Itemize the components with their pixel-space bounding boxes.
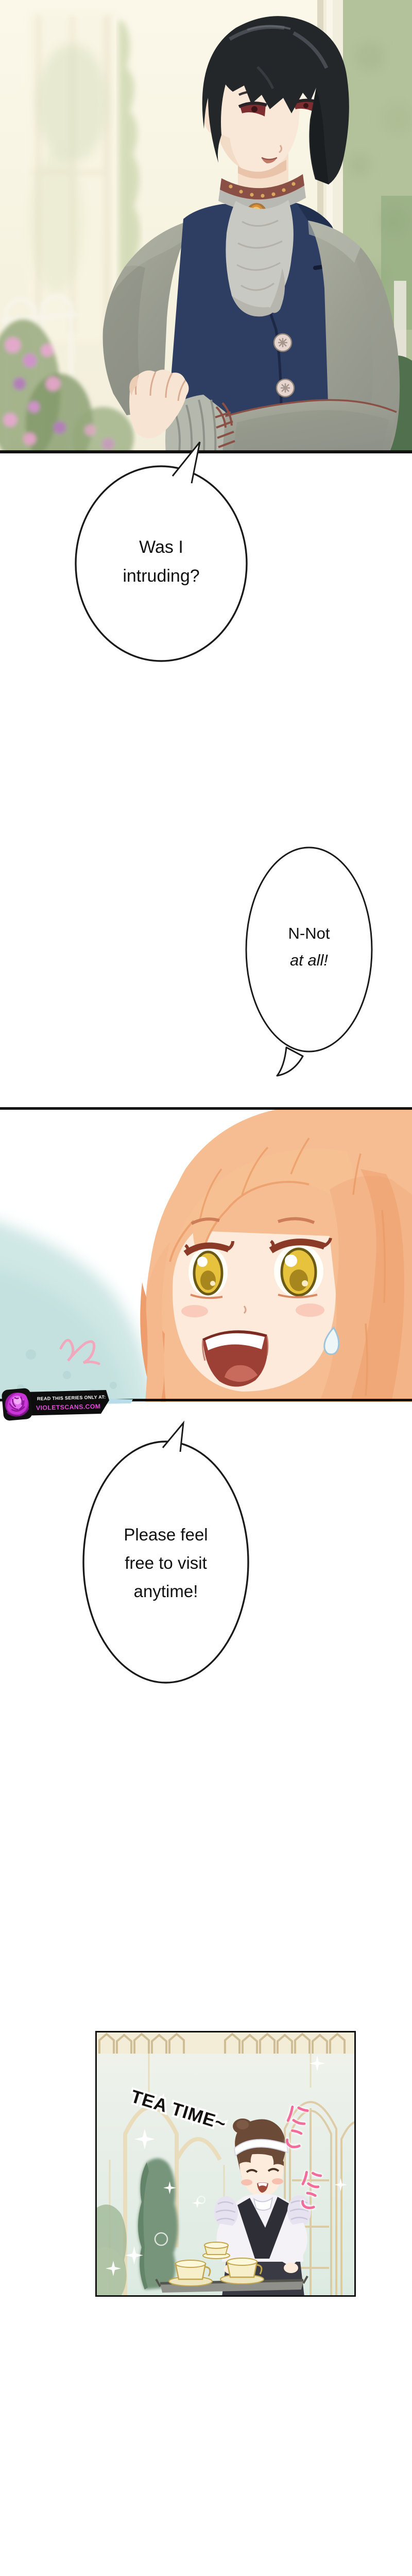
- svg-text:free to visit: free to visit: [125, 1553, 207, 1572]
- svg-text:Please feel: Please feel: [124, 1525, 208, 1544]
- svg-text:at all!: at all!: [290, 951, 328, 969]
- svg-text:Was I: Was I: [139, 537, 183, 557]
- svg-text:anytime!: anytime!: [134, 1582, 198, 1601]
- svg-text:intruding?: intruding?: [123, 566, 199, 586]
- svg-text:N-Not: N-Not: [288, 924, 330, 942]
